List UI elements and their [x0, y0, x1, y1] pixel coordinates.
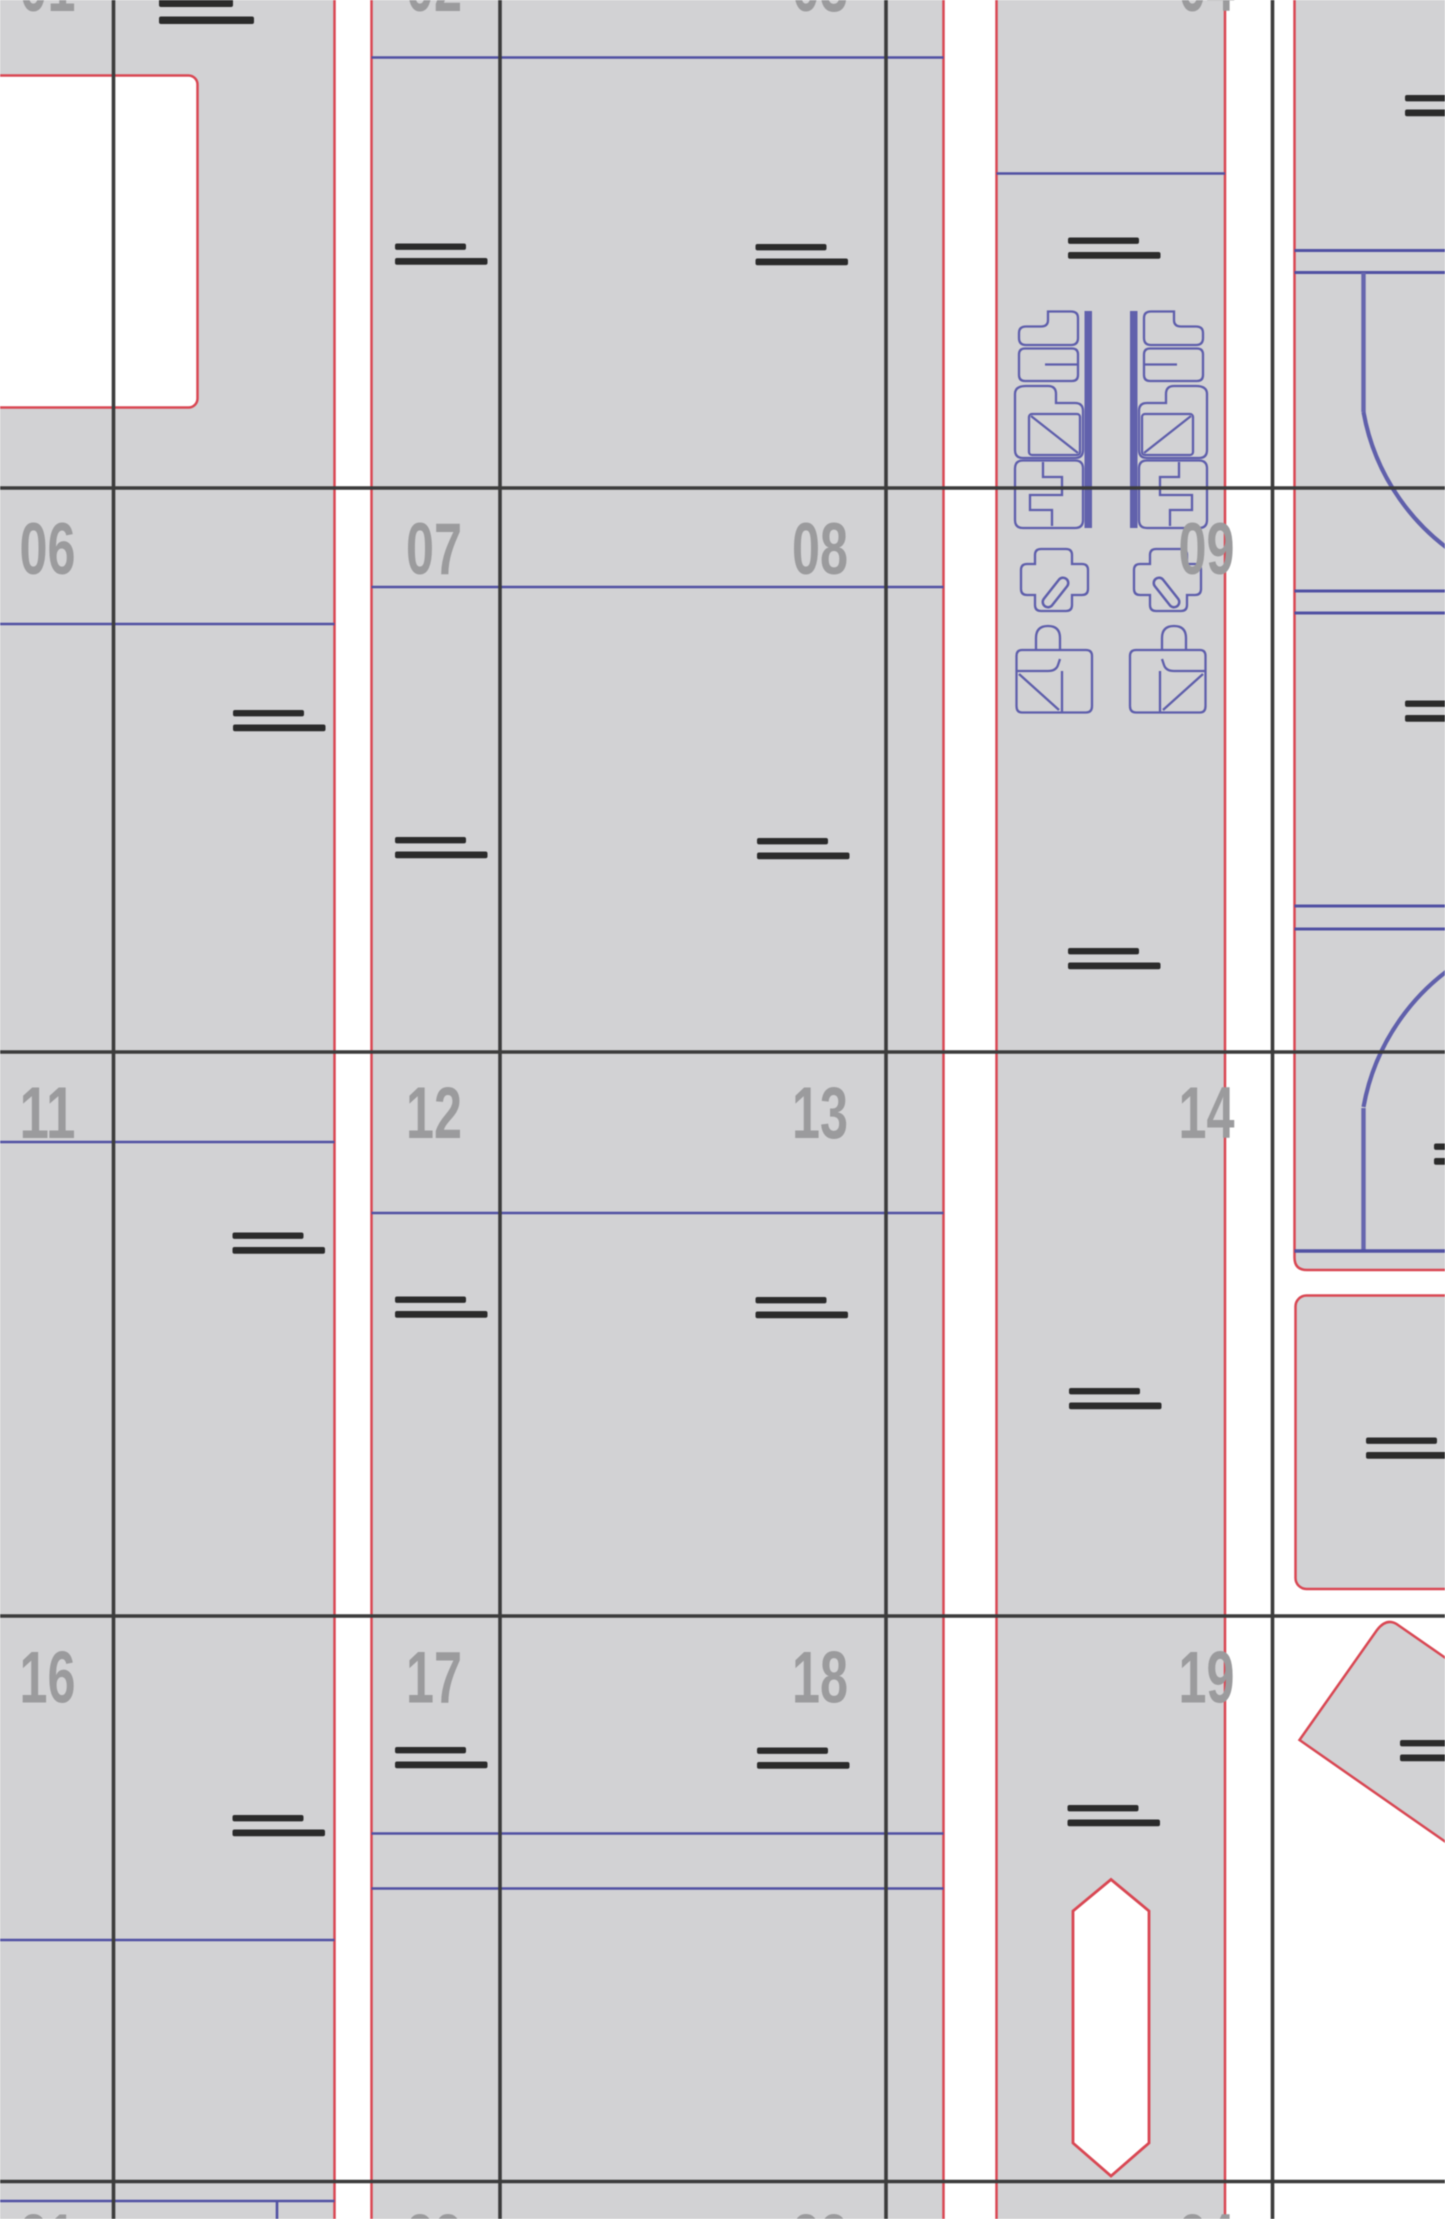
svg-text:01: 01 [20, 0, 76, 27]
svg-text:23: 23 [792, 2200, 848, 2219]
svg-text:12: 12 [406, 1073, 462, 1154]
svg-text:02: 02 [406, 0, 462, 27]
svg-text:24: 24 [1179, 2200, 1235, 2219]
svg-text:09: 09 [1179, 509, 1235, 590]
svg-text:17: 17 [406, 1638, 462, 1719]
svg-text:19: 19 [1179, 1638, 1235, 1719]
svg-text:04: 04 [1179, 0, 1235, 27]
svg-text:18: 18 [792, 1638, 848, 1719]
svg-text:21: 21 [20, 2200, 76, 2219]
svg-text:13: 13 [792, 1073, 848, 1154]
svg-text:08: 08 [792, 509, 848, 590]
svg-text:11: 11 [20, 1073, 76, 1154]
svg-text:06: 06 [20, 509, 76, 590]
svg-text:22: 22 [406, 2200, 462, 2219]
svg-text:14: 14 [1179, 1073, 1235, 1154]
svg-text:07: 07 [406, 509, 462, 590]
svg-text:03: 03 [792, 0, 848, 27]
svg-text:16: 16 [20, 1638, 76, 1719]
